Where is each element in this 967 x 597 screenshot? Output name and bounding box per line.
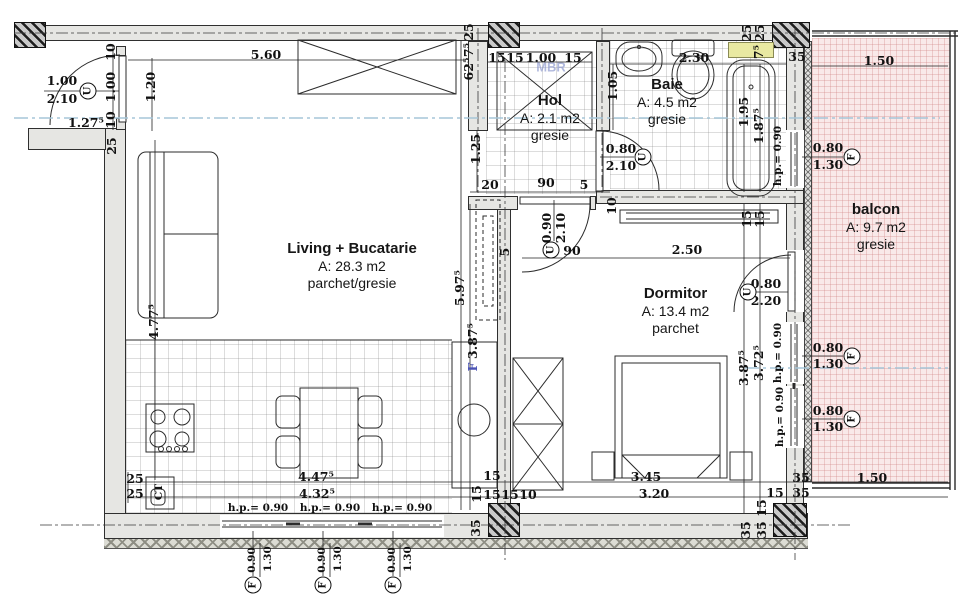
symbol-F-icon: F [315, 577, 332, 594]
dim-label: 10 [105, 111, 118, 128]
room-area: A: 4.5 m2 [617, 94, 717, 111]
dim-label: 0.80 [813, 142, 843, 155]
room-floor: gresie [826, 236, 926, 253]
dim-label: 35 [470, 519, 483, 536]
dim-label: 4.47⁵ [298, 471, 334, 484]
room-name: Living + Bucatarie [252, 240, 452, 258]
dining-table [276, 388, 382, 478]
wardrobe-dormitor [513, 358, 563, 490]
dim-label: 10 [606, 197, 619, 214]
dim-label: h.p.= 0.90 [372, 503, 432, 514]
dim-label: 5 [499, 248, 512, 257]
dim-label: 15 [756, 499, 769, 516]
room-area: A: 9.7 m2 [826, 219, 926, 236]
dim-label: CT [154, 484, 165, 500]
sofa [138, 152, 218, 318]
dim-label: 2.10 [555, 213, 568, 243]
dim-label: 25 [106, 137, 119, 154]
dim-label: 1.30 [813, 421, 843, 434]
dim-label: 0.80 [813, 342, 843, 355]
dim-label: 1.00 [105, 72, 118, 102]
dim-label: 1.50 [857, 472, 887, 485]
dim-label: h.p.= 0.90 [773, 126, 784, 186]
symbol-U-icon: U [543, 242, 560, 259]
dim-label: 35 [740, 521, 753, 538]
kitchen-counter [126, 340, 497, 488]
dim-label: 0.90 [541, 213, 554, 243]
room-floor: gresie [617, 111, 717, 128]
symbol-F-icon: F [844, 149, 861, 166]
dim-label: 5 [580, 179, 589, 192]
dim-label: 25 [463, 23, 476, 40]
baie-sink [616, 42, 662, 76]
dim-label: 1.95 [738, 97, 751, 127]
dim-label: 4.77⁵ [148, 304, 161, 340]
dim-label: 1.30 [333, 546, 344, 572]
room-label-balcon: balconA: 9.7 m2gresie [826, 201, 926, 253]
dim-label: 2.10 [606, 160, 636, 173]
room-label-baie: BaieA: 4.5 m2gresie [617, 76, 717, 128]
dim-label: 2.50 [672, 244, 702, 257]
dim-label: h.p.= 0.90 [228, 503, 288, 514]
dim-label: 1.25 [470, 134, 483, 164]
dim-label: 3.87⁵ [738, 350, 751, 386]
dim-label: 5.60 [251, 49, 281, 62]
dim-label: 2.20 [751, 295, 781, 308]
dim-label: 25 [754, 24, 767, 41]
stove [146, 404, 194, 452]
dim-label: 15 [483, 470, 500, 483]
dim-label: 7⁵ [753, 45, 766, 59]
dim-label: 1.30 [813, 159, 843, 172]
dim-label: 1.50 [864, 55, 894, 68]
dim-label: 15 [501, 489, 518, 502]
dim-label: h.p.= 0.90 [773, 323, 784, 383]
dim-label: F [467, 363, 480, 372]
dim-label: 35 [756, 521, 769, 538]
room-name: balcon [826, 201, 926, 219]
dim-label: 25 [126, 473, 143, 486]
dim-label: 1.30 [263, 546, 274, 572]
dim-label: 15 [483, 489, 500, 502]
dim-label: 0.80 [606, 143, 636, 156]
dim-label: 2.10 [47, 93, 77, 106]
dim-label: 90 [537, 177, 554, 190]
dim-label: 35 [792, 487, 809, 500]
dim-label: 1.00 [47, 75, 77, 88]
room-area: A: 2.1 m2 [500, 110, 600, 127]
dim-label: 90 [563, 245, 580, 258]
dim-label: 1.30 [403, 546, 414, 572]
dim-label: 15 [564, 52, 581, 65]
room-area: A: 13.4 m2 [613, 303, 738, 320]
symbol-F-icon: F [245, 577, 262, 594]
dim-label: 3.20 [639, 488, 669, 501]
dim-label: 0.90 [247, 547, 258, 573]
dim-label: 1.27⁵ [68, 117, 104, 130]
dim-label: h.p.= 0.90 [775, 387, 786, 447]
dim-label: 25 [126, 488, 143, 501]
room-name: Hol [500, 92, 600, 110]
room-label-hol: HolA: 2.1 m2gresie [500, 92, 600, 144]
dim-label: h.p.= 0.90 [300, 503, 360, 514]
bed [592, 356, 752, 480]
dim-label: 15 [506, 52, 523, 65]
symbol-F-icon: F [385, 577, 402, 594]
dim-label: 15 [766, 487, 783, 500]
dim-label: 35 [788, 51, 805, 64]
dim-label: 5.97⁵ [454, 270, 467, 306]
dim-label: 1.87⁵ [753, 108, 766, 144]
dim-label: 0.90 [387, 547, 398, 573]
dim-label: 0.80 [813, 405, 843, 418]
dim-label: 0.90 [317, 547, 328, 573]
dim-label: 15 [754, 210, 767, 227]
dim-label: 3.72⁵ [753, 345, 766, 381]
dim-label: 10 [105, 43, 118, 60]
floor-plan: Living + BucatarieA: 28.3 m2parchet/gres… [0, 0, 967, 597]
dim-label: 2.30 [679, 52, 709, 65]
dim-label: 1.30 [813, 358, 843, 371]
symbol-U-icon: U [80, 83, 97, 100]
dim-label: MBR [536, 61, 566, 74]
wardrobe-living [298, 40, 456, 94]
dim-label: 3.87⁵ [467, 323, 480, 359]
room-label-dormitor: DormitorA: 13.4 m2parchet [613, 285, 738, 337]
dim-label: 4.32⁵ [299, 488, 335, 501]
dim-label: 3.45 [631, 471, 661, 484]
dim-label: 1.05 [607, 71, 620, 101]
dim-label: 10 [519, 489, 536, 502]
dim-label: 20 [481, 179, 498, 192]
dim-label: 1.20 [145, 72, 158, 102]
room-area: A: 28.3 m2 [252, 258, 452, 275]
dim-label: 15 [488, 52, 505, 65]
dim-label: 62⁵ [463, 58, 476, 81]
room-floor: parchet [613, 320, 738, 337]
room-label-living: Living + BucatarieA: 28.3 m2parchet/gres… [252, 240, 452, 292]
room-name: Dormitor [613, 285, 738, 303]
symbol-F-icon: F [844, 348, 861, 365]
room-name: Baie [617, 76, 717, 94]
dim-label: 15 [471, 485, 484, 502]
room-floor: gresie [500, 127, 600, 144]
symbol-U-icon: U [740, 284, 757, 301]
dim-label: 35 [792, 472, 809, 485]
symbol-U-icon: U [635, 149, 652, 166]
dim-label: 7⁵ [463, 43, 476, 57]
symbol-F-icon: F [844, 411, 861, 428]
room-floor: parchet/gresie [252, 275, 452, 292]
radiator [476, 200, 500, 320]
